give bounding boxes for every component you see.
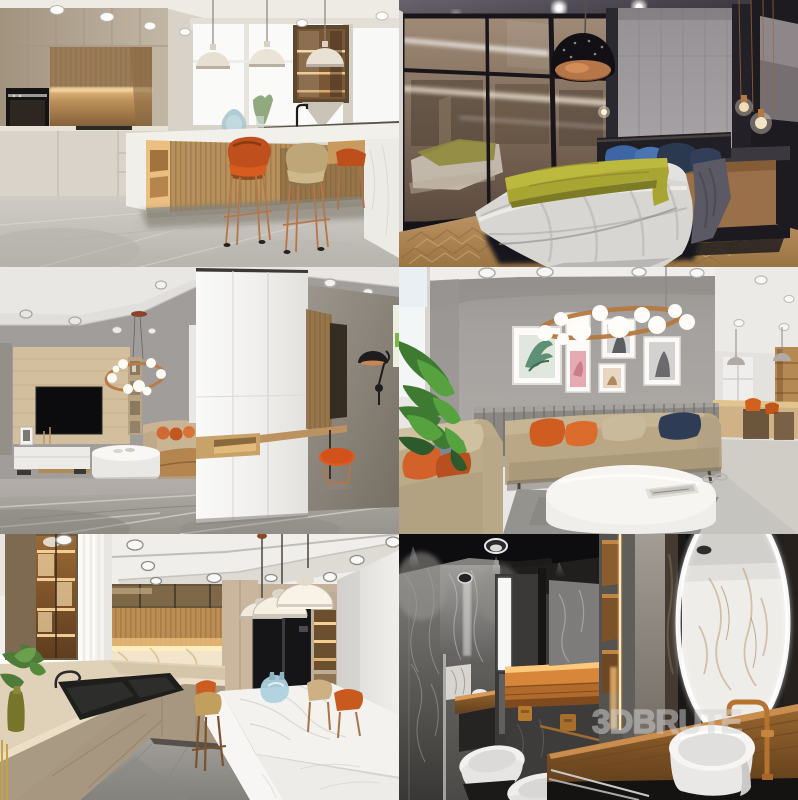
svg-text:3DBRUTE: 3DBRUTE — [592, 703, 741, 740]
